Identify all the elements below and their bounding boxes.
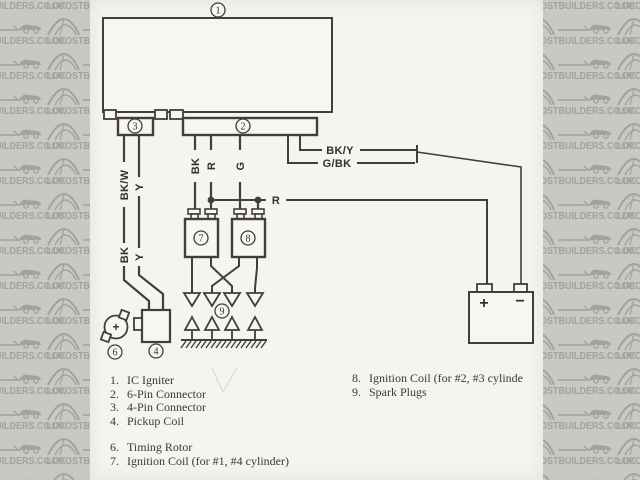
car-logo-icon — [0, 21, 43, 34]
ic-igniter-box — [103, 18, 332, 112]
watermark-tile: LOCOSTBUILDERS.CO.UK — [615, 86, 640, 121]
legend-item-4: 4.Pickup Coil — [110, 415, 184, 428]
scanned-wiring-diagram: LOCOSTBUILDERS.CO.UKLOCOSTBUILDERS.CO.UK… — [0, 0, 640, 480]
arch-logo-icon — [617, 402, 640, 421]
watermark-tile: LOCOSTBUILDERS.CO.UK — [615, 51, 640, 86]
watermark-tile: LOCOSTBUILDERS.CO.UK — [615, 156, 640, 191]
arch-logo-icon — [617, 367, 640, 386]
arch-logo-icon — [617, 192, 640, 211]
arch-logo-icon — [47, 332, 80, 351]
ground-symbol — [181, 340, 267, 348]
watermark-tile: LOCOSTBUILDERS.CO.UK — [0, 226, 45, 261]
car-logo-icon — [558, 441, 613, 454]
watermark-tile: LOCOSTBUILDERS.CO.UK — [0, 471, 45, 480]
callout-igniter: 1 — [216, 6, 221, 17]
wire-label-y-upper: Y — [134, 183, 146, 191]
car-logo-icon — [558, 406, 613, 419]
watermark-tile: LOCOSTBUILDERS.CO.UK — [0, 156, 45, 191]
callout-plugs: 9 — [220, 307, 225, 318]
callout-coil-14: 7 — [199, 234, 204, 245]
arch-logo-icon — [617, 227, 640, 246]
watermark-tile: LOCOSTBUILDERS.CO.UK — [615, 191, 640, 226]
legend-item-9: 9.Spark Plugs — [352, 386, 427, 399]
car-logo-icon — [0, 336, 43, 349]
watermark-tile: LOCOSTBUILDERS.CO.UK — [0, 331, 45, 366]
battery-minus-terminal — [514, 284, 527, 292]
legend-item-6: 6.Timing Rotor — [110, 441, 192, 454]
legend-item-7: 7.Ignition Coil (for #1, #4 cylinder) — [110, 455, 289, 468]
arch-logo-icon — [617, 87, 640, 106]
arch-logo-icon — [47, 122, 80, 141]
watermark-text: LOCOSTBUILDERS.CO.UK — [616, 106, 640, 117]
legend-item-3: 3.4-Pin Connector — [110, 401, 206, 414]
pickup-wires — [124, 135, 163, 310]
arch-logo-icon — [47, 17, 80, 36]
junction-dot — [255, 197, 262, 204]
arch-logo-icon — [47, 192, 80, 211]
car-logo-icon — [0, 126, 43, 139]
car-logo-icon — [0, 196, 43, 209]
car-logo-icon — [0, 231, 43, 244]
legend-item-1: 1.IC Igniter — [110, 374, 174, 387]
watermark-tile: LOCOSTBUILDERS.CO.UK — [0, 366, 45, 401]
watermark-tile: LOCOSTBUILDERS.CO.UK — [0, 191, 45, 226]
pickup-coil-box — [142, 310, 170, 342]
diagram-panel: 1 2 3 4 6 7 8 9 BK/W Y BK Y BK R G BK/Y … — [90, 0, 543, 480]
wire-label-r: R — [206, 162, 218, 170]
car-logo-icon — [0, 371, 43, 384]
watermark-tile: LOCOSTBUILDERS.CO.UK — [0, 436, 45, 471]
car-logo-icon — [558, 336, 613, 349]
car-logo-icon — [0, 476, 43, 480]
watermark-text: LOCOSTBUILDERS.CO.UK — [616, 176, 640, 187]
callout-six-pin: 2 — [241, 122, 246, 133]
watermark-tile: LOCOSTBUILDERS.CO.UK — [615, 471, 640, 480]
arch-logo-icon — [47, 227, 80, 246]
watermark-tile: LOCOSTBUILDERS.CO.UK — [0, 51, 45, 86]
junction-dot — [208, 197, 215, 204]
car-logo-icon — [558, 231, 613, 244]
wire-label-y-lower: Y — [134, 253, 146, 261]
watermark-tile: LOCOSTBUILDERS.CO.UK — [0, 296, 45, 331]
watermark-text: LOCOSTBUILDERS.CO.UK — [616, 246, 640, 257]
arch-logo-icon — [47, 297, 80, 316]
wire-label-bk: BK — [190, 158, 202, 175]
pickup-coil-tab — [134, 318, 142, 330]
car-logo-icon — [558, 126, 613, 139]
watermark-text: LOCOSTBUILDERS.CO.UK — [616, 281, 640, 292]
watermark-tile: LOCOSTBUILDERS.CO.UK — [615, 121, 640, 156]
watermark-tile: LOCOSTBUILDERS.CO.UK — [0, 261, 45, 296]
watermark-tile: LOCOSTBUILDERS.CO.UK — [615, 296, 640, 331]
watermark-tile: LOCOSTBUILDERS.CO.UK — [0, 86, 45, 121]
watermark-tile: LOCOSTBUILDERS.CO.UK — [0, 16, 45, 51]
wire-label-bkw: BK/W — [119, 169, 131, 200]
watermark-tile: LOCOSTBUILDERS.CO.UK — [615, 16, 640, 51]
watermark-tile: LOCOSTBUILDERS.CO.UK — [615, 331, 640, 366]
battery-plus-terminal — [477, 284, 492, 292]
arch-logo-icon — [47, 437, 80, 456]
car-logo-icon — [558, 476, 613, 480]
coil-terminals — [188, 209, 264, 219]
car-logo-icon — [558, 371, 613, 384]
watermark-text: LOCOSTBUILDERS.CO.UK — [616, 36, 640, 47]
battery-plus-symbol: + — [479, 295, 488, 312]
arch-logo-icon — [617, 297, 640, 316]
car-logo-icon — [558, 266, 613, 279]
car-logo-icon — [558, 301, 613, 314]
callout-four-pin: 3 — [133, 122, 138, 133]
watermark-tile: LOCOSTBUILDERS.CO.UK — [615, 261, 640, 296]
watermark-text: LOCOSTBUILDERS.CO.UK — [616, 71, 640, 82]
watermark-tile: LOCOSTBUILDERS.CO.UK — [0, 121, 45, 156]
watermark-tile: LOCOSTBUILDERS.CO.UK — [0, 401, 45, 436]
watermark-text: LOCOSTBUILDERS.CO.UK — [616, 1, 640, 12]
arch-logo-icon — [47, 402, 80, 421]
arch-logo-icon — [47, 262, 80, 281]
watermark-text: LOCOSTBUILDERS.CO.UK — [616, 456, 640, 467]
wire-label-gbk: G/BK — [323, 158, 352, 170]
wire-label-r-bus: R — [272, 195, 280, 207]
arch-logo-icon — [47, 367, 80, 386]
car-logo-icon — [0, 91, 43, 104]
callout-rotor: 6 — [113, 348, 118, 359]
watermark-text: LOCOSTBUILDERS.CO.UK — [616, 316, 640, 327]
watermark-text: LOCOSTBUILDERS.CO.UK — [616, 351, 640, 362]
watermark-text: LOCOSTBUILDERS.CO.UK — [616, 386, 640, 397]
arch-logo-icon — [47, 157, 80, 176]
arch-logo-icon — [47, 52, 80, 71]
arch-logo-icon — [617, 437, 640, 456]
watermark-text: LOCOSTBUILDERS.CO.UK — [616, 211, 640, 222]
watermark-tile: LOCOSTBUILDERS.CO.UK — [615, 226, 640, 261]
watermark-tile: LOCOSTBUILDERS.CO.UK — [615, 436, 640, 471]
car-logo-icon — [558, 196, 613, 209]
arch-logo-icon — [617, 332, 640, 351]
arch-logo-icon — [617, 262, 640, 281]
arch-logo-icon — [617, 17, 640, 36]
callout-pickup: 4 — [154, 347, 159, 358]
arch-logo-icon — [617, 157, 640, 176]
plug-leads — [192, 257, 257, 293]
car-logo-icon — [0, 56, 43, 69]
arch-logo-icon — [617, 122, 640, 141]
watermark-tile: LOCOSTBUILDERS.CO.UK — [0, 0, 45, 16]
arch-logo-icon — [617, 472, 640, 480]
watermark-tile: LOCOSTBUILDERS.CO.UK — [615, 0, 640, 16]
watermark-tile: LOCOSTBUILDERS.CO.UK — [615, 401, 640, 436]
car-logo-icon — [0, 406, 43, 419]
car-logo-icon — [558, 56, 613, 69]
watermark-tile: LOCOSTBUILDERS.CO.UK — [615, 366, 640, 401]
watermark-text: LOCOSTBUILDERS.CO.UK — [616, 421, 640, 432]
car-logo-icon — [0, 441, 43, 454]
car-logo-icon — [558, 161, 613, 174]
arch-logo-icon — [47, 472, 80, 480]
car-logo-icon — [0, 161, 43, 174]
wire-label-bky: BK/Y — [326, 145, 354, 157]
wire-label-bk-lower: BK — [119, 247, 131, 264]
car-logo-icon — [558, 91, 613, 104]
rotor-plus-symbol: + — [112, 320, 119, 334]
watermark-text: LOCOSTBUILDERS.CO.UK — [616, 141, 640, 152]
car-logo-icon — [558, 21, 613, 34]
car-logo-icon — [0, 301, 43, 314]
arch-logo-icon — [47, 87, 80, 106]
battery-minus-symbol: − — [515, 293, 524, 310]
legend-item-8: 8.Ignition Coil (for #2, #3 cylinde — [352, 372, 523, 385]
wire-label-g: G — [235, 162, 247, 171]
coil-feed-wires — [195, 135, 258, 210]
arch-logo-icon — [617, 52, 640, 71]
callout-coil-23: 8 — [246, 234, 251, 245]
car-logo-icon — [0, 266, 43, 279]
